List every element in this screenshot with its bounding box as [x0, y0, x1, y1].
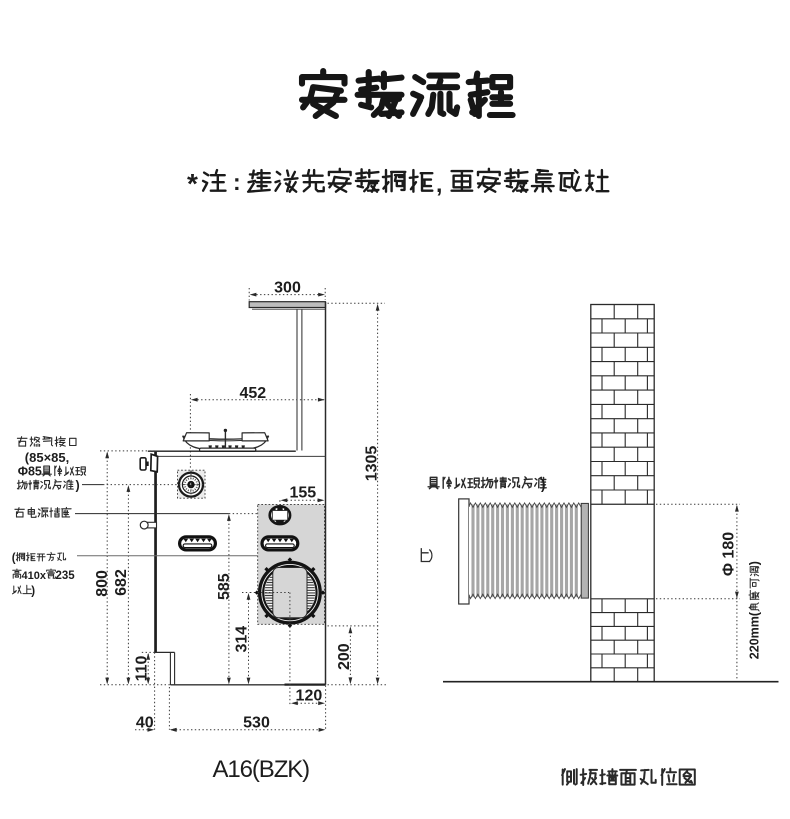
svg-text:110: 110: [133, 655, 150, 681]
svg-text:): ): [31, 585, 35, 597]
svg-text:682: 682: [113, 569, 130, 596]
svg-text:452: 452: [239, 385, 266, 402]
svg-text:(: (: [12, 552, 16, 564]
svg-text:200: 200: [336, 643, 353, 670]
svg-text:A16(BZK): A16(BZK): [213, 756, 310, 783]
svg-text:1305: 1305: [363, 446, 380, 482]
svg-text:Φ85: Φ85: [18, 464, 42, 478]
svg-text:40: 40: [136, 714, 154, 731]
svg-text:220mm(: 220mm(: [748, 611, 762, 659]
svg-text:): ): [76, 479, 80, 493]
svg-text::: :: [233, 169, 241, 195]
svg-text:300: 300: [274, 280, 301, 297]
svg-text:155: 155: [289, 485, 316, 502]
svg-text:(85×85,: (85×85,: [25, 450, 69, 465]
svg-text:530: 530: [243, 714, 270, 731]
svg-text:*: *: [187, 168, 198, 199]
svg-text:Φ 180: Φ 180: [721, 532, 738, 576]
svg-text:,: ,: [436, 171, 442, 197]
svg-text:410x: 410x: [22, 570, 47, 582]
svg-text:): ): [541, 477, 546, 492]
svg-text:): ): [748, 561, 762, 565]
svg-text:585: 585: [216, 573, 233, 600]
svg-text:800: 800: [94, 570, 111, 597]
svg-text:235: 235: [56, 570, 76, 582]
svg-text:120: 120: [296, 688, 323, 705]
svg-text:314: 314: [233, 626, 250, 653]
